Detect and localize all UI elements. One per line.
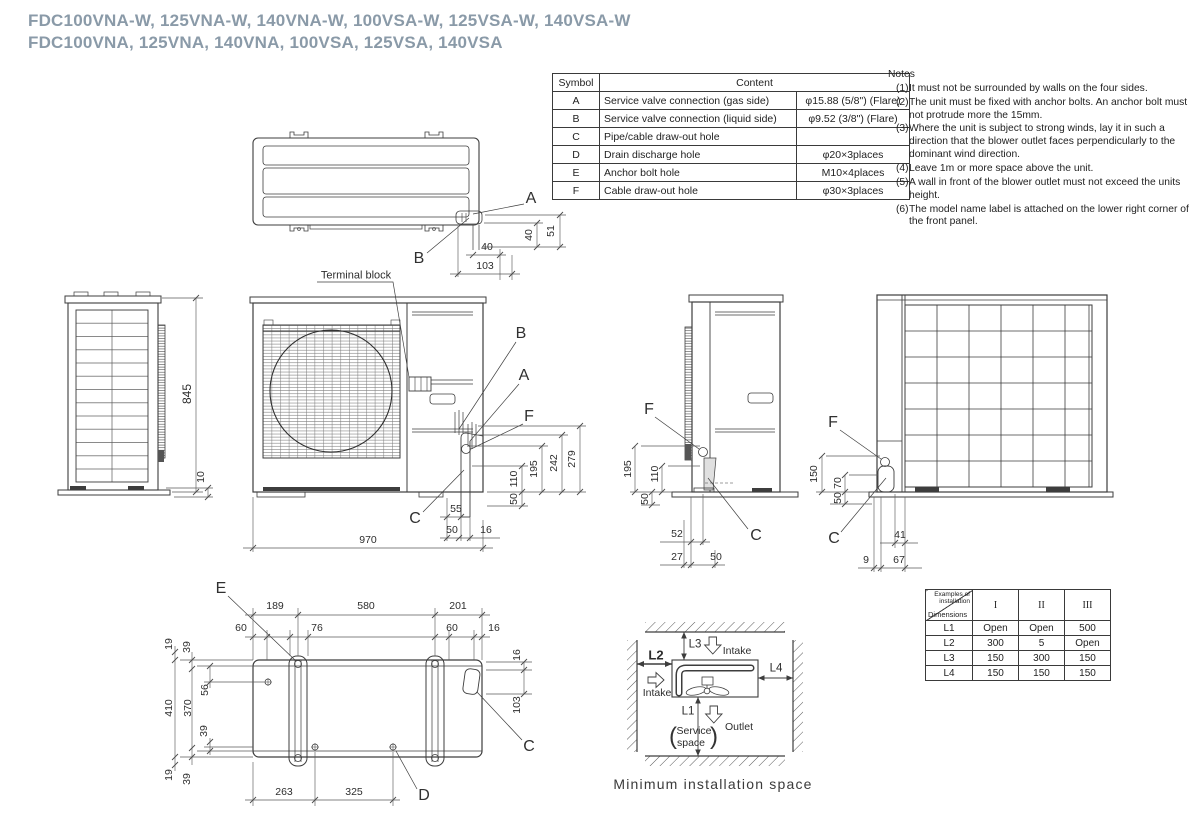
dim-41-back: 41 [894, 530, 906, 541]
table-row: Examples of installation Dimensions I II… [926, 590, 1111, 621]
cell: L4 [926, 666, 973, 681]
note-text: It must not be surrounded by walls on th… [909, 83, 1198, 96]
callout-d-bottom: D [418, 788, 430, 804]
table-row: A Service valve connection (gas side) φ1… [553, 92, 910, 110]
dim-51-top: 51 [546, 225, 557, 237]
callout-a-front: A [519, 368, 530, 384]
corner-label-bottom: Dimensions [928, 610, 967, 619]
dim-70-back: 70 [833, 477, 844, 489]
cell: D [553, 146, 600, 164]
label-l3: L3 [689, 639, 702, 651]
table-row: F Cable draw-out hole φ30×3places [553, 182, 910, 200]
dim-40-top-v: 40 [524, 229, 535, 241]
callout-c-front: C [409, 511, 421, 527]
dim-150-back: 150 [809, 465, 820, 483]
notes-heading: Notes [888, 69, 1198, 82]
label-l2: L2 [648, 649, 663, 662]
dim-845-height: 845 [181, 384, 193, 404]
dim-16-front: 16 [480, 525, 492, 536]
dim-195-front: 195 [529, 460, 540, 478]
dim-103-top: 103 [476, 261, 494, 272]
dim-50v-front: 50 [509, 493, 520, 505]
cell: L1 [926, 621, 973, 636]
column-header-3: III [1065, 590, 1111, 621]
cell: 150 [1019, 666, 1065, 681]
terminal-block-label: Terminal block [321, 271, 391, 282]
note-number: (6) [888, 204, 909, 230]
dim-39a-bottom: 39 [182, 641, 193, 653]
back-view-drawing [840, 295, 1113, 532]
cell: Open [1065, 636, 1111, 651]
table-row: L1 Open Open 500 [926, 621, 1111, 636]
dim-16b-bottom: 16 [512, 649, 523, 661]
cell: 150 [1065, 651, 1111, 666]
dim-67-back: 67 [893, 555, 905, 566]
callout-f-back: F [828, 415, 838, 431]
dim-39c-bottom: 39 [182, 773, 193, 785]
note-item: (5) A wall in front of the blower outlet… [888, 177, 1198, 203]
installation-drawing-sheet: FDC100VNA-W, 125VNA-W, 140VNA-W, 100VSA-… [0, 0, 1200, 825]
cell: 5 [1019, 636, 1065, 651]
note-item: (4) Leave 1m or more space above the uni… [888, 163, 1198, 176]
corner-label-top: Examples of installation [934, 591, 970, 606]
dim-325-bottom: 325 [345, 787, 363, 798]
cell: 150 [973, 651, 1019, 666]
note-item: (6) The model name label is attached on … [888, 204, 1198, 230]
label-outlet: Outlet [725, 722, 753, 733]
cell: Service valve connection (liquid side) [600, 110, 797, 128]
column-header-1: I [973, 590, 1019, 621]
dim-201-bottom: 201 [449, 601, 467, 612]
dim-242-front: 242 [549, 454, 560, 472]
dim-410-bottom: 410 [164, 699, 175, 717]
cell: 300 [1019, 651, 1065, 666]
dim-110-front: 110 [509, 471, 520, 488]
front-view-drawing [250, 282, 523, 517]
dim-580-bottom: 580 [357, 601, 375, 612]
note-number: (1) [888, 83, 909, 96]
cell: L2 [926, 636, 973, 651]
dim-52-side: 52 [671, 529, 683, 540]
dim-263-bottom: 263 [275, 787, 293, 798]
callout-b-top: B [414, 251, 425, 267]
top-view-dimensions [450, 212, 566, 280]
table-row: L2 300 5 Open [926, 636, 1111, 651]
callout-f-front: F [524, 409, 534, 425]
dim-10-base: 10 [196, 471, 207, 483]
note-item: (1) It must not be surrounded by walls o… [888, 83, 1198, 96]
cell: Pipe/cable draw-out hole [600, 128, 797, 146]
cell: A [553, 92, 600, 110]
dim-40-top-h: 40 [481, 242, 493, 253]
note-number: (4) [888, 163, 909, 176]
cell: Anchor bolt hole [600, 164, 797, 182]
note-item: (2) The unit must be fixed with anchor b… [888, 97, 1198, 123]
dim-55-front: 55 [450, 504, 462, 515]
label-service-space-1: Service [676, 726, 711, 737]
table-row: Symbol Content [553, 74, 910, 92]
table-row: C Pipe/cable draw-out hole [553, 128, 910, 146]
callout-a-top: A [526, 191, 537, 207]
dim-50b-side: 50 [710, 552, 722, 563]
top-view-drawing [253, 132, 524, 253]
note-text: The model name label is attached on the … [909, 204, 1198, 230]
dim-60a-bottom: 60 [235, 623, 247, 634]
cell: 300 [973, 636, 1019, 651]
table-row: L4 150 150 150 [926, 666, 1111, 681]
dim-76-bottom: 76 [311, 623, 323, 634]
right-side-view-drawing [655, 295, 798, 529]
label-service-space-2: space [677, 738, 705, 749]
dim-19a-bottom: 19 [164, 638, 175, 650]
table-row: B Service valve connection (liquid side)… [553, 110, 910, 128]
symbol-header: Symbol [553, 74, 600, 92]
dim-39b-bottom: 39 [199, 725, 210, 737]
dim-189-bottom: 189 [266, 601, 284, 612]
symbol-table: Symbol Content A Service valve connectio… [552, 73, 910, 200]
dim-60b-bottom: 60 [446, 623, 458, 634]
service-paren-close: ) [710, 725, 718, 749]
dim-50-side: 50 [640, 493, 651, 505]
dim-279-front: 279 [567, 450, 578, 468]
table-row: L3 150 300 150 [926, 651, 1111, 666]
dim-195-side: 195 [623, 460, 634, 478]
note-text: Leave 1m or more space above the unit. [909, 163, 1198, 176]
min-space-caption: Minimum installation space [613, 777, 812, 791]
dim-27-side: 27 [671, 552, 683, 563]
note-text: The unit must be fixed with anchor bolts… [909, 97, 1198, 123]
cell: B [553, 110, 600, 128]
column-header-2: II [1019, 590, 1065, 621]
note-text: A wall in front of the blower outlet mus… [909, 177, 1198, 203]
corner-cell: Examples of installation Dimensions [926, 590, 973, 621]
cell: 150 [973, 666, 1019, 681]
callout-b-front: B [516, 326, 527, 342]
cell: Open [973, 621, 1019, 636]
label-l1: L1 [682, 706, 695, 718]
cell: 500 [1065, 621, 1111, 636]
note-item: (3) Where the unit is subject to strong … [888, 123, 1198, 162]
installation-examples-table: Examples of installation Dimensions I II… [925, 589, 1111, 681]
dim-50b-front: 50 [446, 525, 458, 536]
note-number: (2) [888, 97, 909, 123]
left-side-view-drawing [58, 292, 170, 495]
cell: L3 [926, 651, 973, 666]
dim-370-bottom: 370 [183, 699, 194, 717]
label-intake-left: Intake [643, 688, 672, 699]
callout-f-side: F [644, 402, 654, 418]
bottom-view-drawing [228, 596, 522, 789]
callout-c-bottom: C [523, 739, 535, 755]
dim-110-side: 110 [650, 466, 661, 483]
label-intake-top: Intake [723, 646, 752, 657]
dim-56-bottom: 56 [200, 684, 211, 696]
note-text: Where the unit is subject to strong wind… [909, 123, 1198, 162]
model-title: FDC100VNA-W, 125VNA-W, 140VNA-W, 100VSA-… [28, 10, 631, 54]
label-l4: L4 [770, 663, 783, 675]
dim-9-back: 9 [863, 555, 869, 566]
content-header: Content [600, 74, 910, 92]
cell: Open [1019, 621, 1065, 636]
callout-e-bottom: E [216, 581, 227, 597]
dim-16a-bottom: 16 [488, 623, 500, 634]
note-number: (5) [888, 177, 909, 203]
dim-103-bottom: 103 [512, 696, 523, 714]
callout-c-side: C [750, 528, 762, 544]
cell: F [553, 182, 600, 200]
model-title-line2: FDC100VNA, 125VNA, 140VNA, 100VSA, 125VS… [28, 32, 631, 54]
cell: Service valve connection (gas side) [600, 92, 797, 110]
dim-970-width: 970 [359, 535, 377, 546]
dim-19b-bottom: 19 [164, 769, 175, 781]
cell: E [553, 164, 600, 182]
cell: Drain discharge hole [600, 146, 797, 164]
callout-c-back: C [828, 531, 840, 547]
table-row: D Drain discharge hole φ20×3places [553, 146, 910, 164]
cell: 150 [1065, 666, 1111, 681]
bottom-view-dimensions [172, 608, 532, 806]
note-number: (3) [888, 123, 909, 162]
model-title-line1: FDC100VNA-W, 125VNA-W, 140VNA-W, 100VSA-… [28, 10, 631, 32]
cell: C [553, 128, 600, 146]
table-row: E Anchor bolt hole M10×4places [553, 164, 910, 182]
notes-block: Notes (1) It must not be surrounded by w… [888, 69, 1198, 229]
dim-50-back: 50 [833, 492, 844, 504]
cell: Cable draw-out hole [600, 182, 797, 200]
